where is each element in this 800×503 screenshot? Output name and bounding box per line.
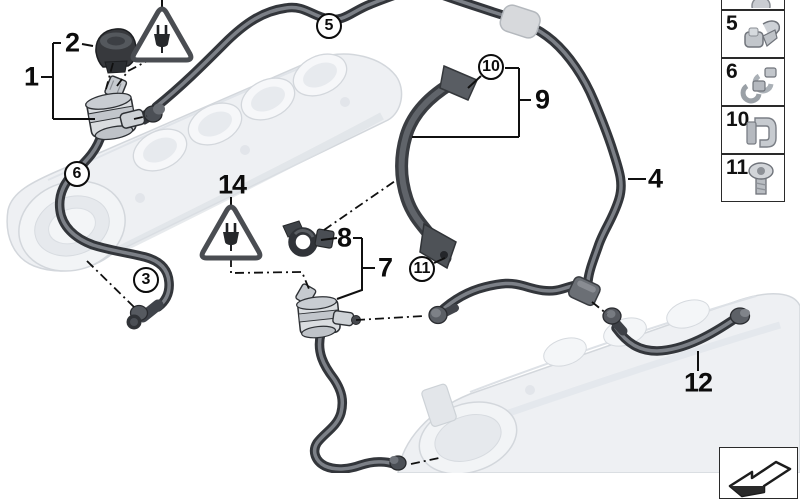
foam-sleeve: [498, 3, 542, 40]
elbow-fitting-4: [429, 307, 455, 324]
vent-hose-lower: [315, 333, 394, 469]
callout-1[interactable]: 1: [24, 64, 38, 91]
callout-7[interactable]: 7: [378, 255, 392, 282]
parts-diagram-canvas: 1 2 4 7 8 9 12 14 5 6 3 10 11 5 6 10: [0, 0, 800, 473]
vent-hose-right: [437, 0, 621, 281]
screw-icon: [739, 160, 783, 200]
hose-clip-icon: [739, 16, 783, 56]
page-continues-box[interactable]: [719, 447, 798, 499]
sidebar-item-5[interactable]: 5: [721, 10, 785, 58]
callout-9[interactable]: 9: [535, 87, 549, 114]
sidebar-item-10[interactable]: 10: [721, 106, 785, 154]
page-continues-arrow-icon: [720, 448, 796, 498]
callout-10-circled[interactable]: 10: [478, 54, 504, 80]
partial-part-icon: [725, 0, 783, 8]
sidebar-item-11[interactable]: 11: [721, 154, 785, 202]
callout-11-circled[interactable]: 11: [409, 256, 435, 282]
sidebar-item-label: 5: [726, 12, 738, 36]
double-clip-icon: [739, 64, 783, 104]
callout-2[interactable]: 2: [65, 30, 79, 57]
vent-hose-horizontal: [440, 283, 584, 312]
callout-5-circled[interactable]: 5: [316, 13, 342, 39]
callout-6-circled[interactable]: 6: [64, 161, 90, 187]
callout-8[interactable]: 8: [337, 225, 351, 252]
callout-14[interactable]: 14: [218, 172, 246, 199]
pipe-end-fitting: [731, 308, 751, 324]
sidebar-item-cutoff[interactable]: [721, 0, 785, 10]
lower-hose-end-fitting: [390, 456, 407, 470]
callout-12[interactable]: 12: [684, 370, 712, 397]
vent-valve-2: [295, 283, 360, 339]
mounting-bracket-9: [402, 66, 477, 268]
elbow-fitting-3: [127, 305, 159, 330]
warning-triangle-plug-icon: [202, 207, 260, 258]
warning-triangle-plug-icon: [133, 9, 191, 60]
sidebar-item-6[interactable]: 6: [721, 58, 785, 106]
vent-valve-1: [85, 75, 146, 142]
callout-3-circled[interactable]: 3: [133, 267, 159, 293]
diagram-artwork: [0, 0, 800, 473]
callout-4[interactable]: 4: [648, 166, 662, 193]
sidebar-item-label: 6: [726, 60, 738, 84]
sheet-metal-clip-icon: [739, 112, 783, 152]
hose-clamp-8: [283, 221, 334, 253]
hose-coupling: [567, 275, 602, 307]
valve-cap: [96, 29, 136, 73]
